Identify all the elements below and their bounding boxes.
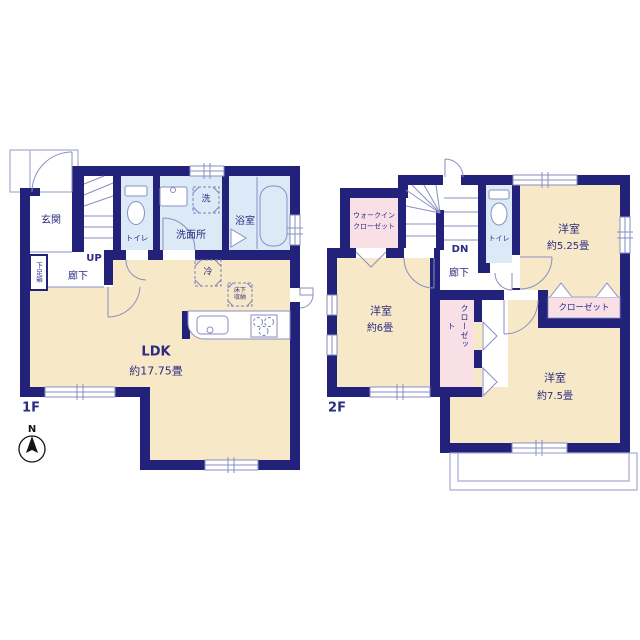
room-ldk-lower: [150, 387, 290, 460]
label-floor1: 1F: [22, 402, 40, 415]
room-hallway-2f-b: [480, 273, 512, 290]
window-bedroom6-left-a: [327, 295, 337, 315]
shoe-box: 下足箱: [29, 254, 48, 291]
bedroom6-door-opening: [404, 248, 434, 258]
label-stairs-down: DN: [452, 245, 469, 255]
label-washroom: 洗面所: [176, 231, 206, 241]
label-hallway-1f: 廊下: [68, 272, 88, 282]
label-wic-1: ウォークイン: [353, 213, 395, 220]
label-bedroom75: 洋室: [544, 373, 566, 384]
label-washer: 洗: [201, 196, 210, 205]
balcony: [450, 453, 637, 490]
label-refrigerator: 冷: [203, 269, 212, 278]
label-closet525: クローゼット: [558, 304, 609, 313]
washroom-door-opening: [163, 250, 195, 260]
floorplan-page: 玄関 下足箱 廊下 UP トイレ 洗 洗面所 浴室 冷 床下 収納 LDK 約1…: [0, 0, 640, 640]
window-bedroom6-left-b: [327, 335, 337, 355]
bedroom525-door-opening: [512, 255, 520, 288]
kitchen-back-door: [300, 288, 313, 308]
kitchen-counter: [188, 311, 290, 339]
label-entrance: 玄関: [41, 216, 61, 226]
label-bedroom525-size: 約5.25畳: [547, 242, 589, 252]
toilet-door-opening-2f: [490, 263, 512, 273]
label-wic-2: クローゼット: [353, 224, 395, 231]
label-bedroom525: 洋室: [558, 224, 580, 235]
label-underfloor-storage-2: 収納: [234, 295, 246, 301]
floorplan-canvas: [0, 0, 640, 640]
washbasin-icon: [160, 187, 187, 206]
toilet-door-opening-1f: [126, 250, 148, 260]
entrance-porch: [10, 150, 78, 192]
entrance-door-arc: [32, 152, 72, 192]
label-ldk-size: 約17.75畳: [129, 366, 183, 377]
compass-icon: [19, 436, 45, 462]
label-toilet-2f: トイレ: [489, 236, 510, 243]
label-closet-mid: クローゼット: [443, 303, 473, 349]
label-bathroom: 浴室: [235, 217, 255, 227]
label-bedroom75-size: 約7.5畳: [537, 392, 573, 402]
label-ldk: LDK: [141, 346, 170, 359]
label-compass-n: N: [28, 425, 36, 435]
label-bedroom6: 洋室: [370, 306, 392, 317]
label-bedroom6-size: 約6畳: [367, 324, 393, 334]
label-toilet-1f: トイレ: [126, 234, 149, 242]
kitchen-door-opening: [290, 288, 300, 302]
stair-top-opening: [443, 175, 461, 185]
stair-top-door-arc: [445, 159, 463, 177]
bedroom75-door-opening: [504, 290, 538, 300]
toilet-icon-2f: [489, 190, 509, 225]
label-hallway-2f: 廊下: [449, 269, 469, 279]
label-stairs-up: UP: [86, 254, 101, 264]
floor1-plan: [10, 150, 313, 473]
label-floor2: 2F: [328, 402, 346, 415]
stairwell-1f: [84, 176, 113, 252]
